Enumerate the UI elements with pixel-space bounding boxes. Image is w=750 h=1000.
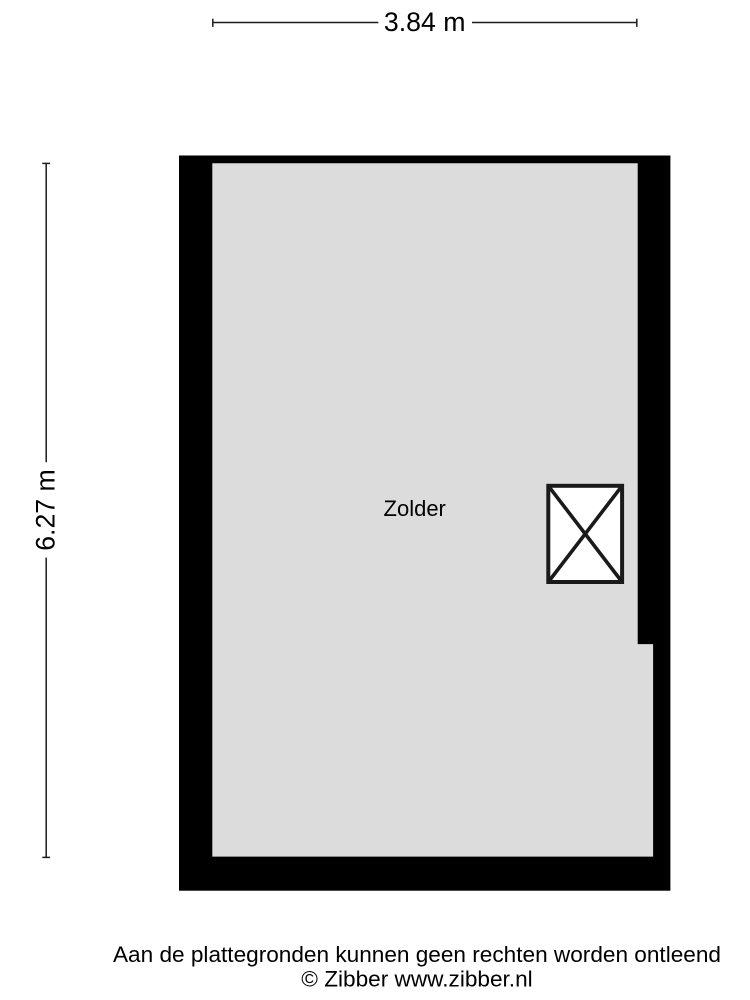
svg-text:6.27 m: 6.27 m <box>31 469 61 551</box>
svg-text:Zolder: Zolder <box>384 496 446 521</box>
svg-text:© Zibber www.zibber.nl: © Zibber www.zibber.nl <box>301 967 532 992</box>
svg-text:3.84 m: 3.84 m <box>384 7 466 37</box>
svg-text:Aan de plattegronden kunnen ge: Aan de plattegronden kunnen geen rechten… <box>113 942 721 967</box>
